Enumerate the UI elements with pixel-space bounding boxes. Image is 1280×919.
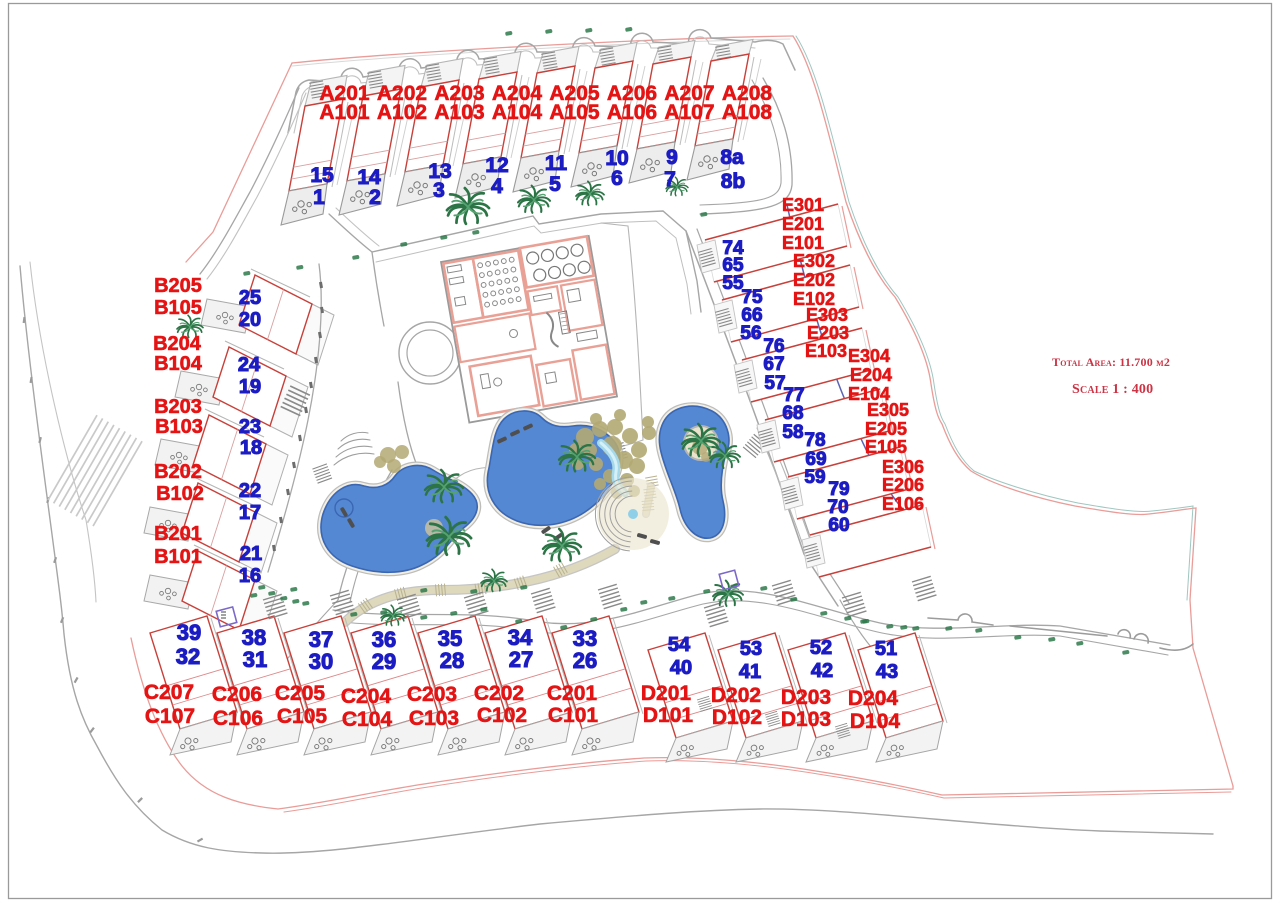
svg-text:C203: C203	[407, 683, 457, 706]
svg-text:E105: E105	[865, 437, 907, 457]
svg-text:22: 22	[239, 480, 261, 502]
svg-text:59: 59	[804, 467, 825, 488]
svg-text:B104: B104	[154, 353, 203, 375]
svg-text:C206: C206	[212, 683, 262, 706]
svg-text:30: 30	[309, 649, 333, 674]
svg-text:B105: B105	[154, 297, 202, 319]
svg-text:A105: A105	[549, 101, 600, 124]
svg-text:D102: D102	[712, 706, 762, 729]
svg-text:Total Area: 11.700 м2: Total Area: 11.700 м2	[1052, 355, 1170, 369]
svg-text:3: 3	[433, 179, 445, 202]
svg-text:Scale 1 : 400: Scale 1 : 400	[1072, 382, 1153, 397]
svg-text:A108: A108	[722, 101, 773, 124]
svg-text:D201: D201	[641, 682, 692, 705]
svg-text:9: 9	[666, 146, 678, 169]
svg-text:B201: B201	[154, 523, 202, 545]
svg-text:B102: B102	[156, 483, 204, 505]
svg-text:25: 25	[239, 287, 261, 309]
svg-text:B204: B204	[153, 333, 202, 355]
svg-text:C202: C202	[474, 682, 524, 705]
svg-text:67: 67	[763, 354, 784, 375]
svg-text:19: 19	[239, 376, 261, 398]
svg-text:60: 60	[828, 515, 849, 536]
svg-text:D202: D202	[711, 684, 761, 707]
svg-text:C101: C101	[548, 704, 599, 727]
svg-text:E306: E306	[882, 457, 924, 477]
svg-text:28: 28	[440, 648, 464, 673]
svg-text:42: 42	[811, 660, 833, 682]
svg-text:E305: E305	[867, 400, 909, 420]
svg-text:21: 21	[240, 543, 262, 565]
svg-text:56: 56	[740, 323, 761, 344]
svg-text:27: 27	[509, 647, 533, 672]
svg-text:7: 7	[664, 168, 676, 191]
svg-text:C201: C201	[547, 682, 598, 705]
svg-text:43: 43	[876, 661, 898, 683]
svg-text:C106: C106	[213, 707, 263, 730]
svg-text:52: 52	[810, 637, 832, 659]
svg-text:E301: E301	[782, 195, 824, 215]
svg-text:E103: E103	[805, 341, 847, 361]
svg-text:E205: E205	[865, 419, 907, 439]
svg-text:E106: E106	[882, 494, 924, 514]
svg-text:29: 29	[372, 649, 396, 674]
svg-text:8b: 8b	[721, 170, 746, 193]
svg-text:D104: D104	[850, 710, 901, 733]
svg-text:D203: D203	[781, 686, 831, 709]
svg-text:B202: B202	[154, 461, 202, 483]
svg-text:8a: 8a	[720, 146, 744, 169]
svg-text:6: 6	[611, 167, 623, 190]
svg-text:54: 54	[668, 634, 691, 656]
svg-text:E201: E201	[782, 214, 824, 234]
svg-text:57: 57	[764, 373, 785, 394]
svg-text:58: 58	[782, 422, 803, 443]
svg-text:1: 1	[313, 186, 325, 209]
svg-text:B203: B203	[154, 396, 202, 418]
svg-text:B205: B205	[154, 275, 202, 297]
svg-text:C102: C102	[477, 704, 527, 727]
svg-text:23: 23	[239, 416, 261, 438]
svg-text:C107: C107	[145, 705, 195, 728]
svg-text:17: 17	[239, 502, 261, 524]
svg-text:C207: C207	[144, 681, 194, 704]
svg-text:C205: C205	[275, 682, 326, 705]
svg-text:B103: B103	[155, 416, 203, 438]
svg-text:E303: E303	[806, 305, 848, 325]
svg-text:12: 12	[485, 154, 508, 177]
svg-text:E302: E302	[793, 251, 835, 271]
svg-text:A106: A106	[607, 101, 657, 124]
svg-text:41: 41	[739, 661, 761, 683]
svg-text:E206: E206	[882, 475, 924, 495]
svg-text:C103: C103	[409, 707, 459, 730]
svg-text:E204: E204	[850, 365, 892, 385]
svg-text:39: 39	[177, 620, 201, 645]
svg-text:C104: C104	[342, 708, 393, 731]
svg-text:C105: C105	[277, 705, 328, 728]
svg-text:31: 31	[243, 647, 267, 672]
svg-text:E101: E101	[782, 233, 824, 253]
svg-text:4: 4	[491, 175, 503, 198]
svg-text:15: 15	[310, 164, 334, 187]
svg-text:78: 78	[804, 430, 825, 451]
svg-text:11: 11	[545, 152, 568, 175]
svg-text:26: 26	[573, 648, 597, 673]
svg-text:A107: A107	[664, 101, 714, 124]
svg-text:A103: A103	[434, 101, 484, 124]
svg-text:A104: A104	[492, 101, 543, 124]
svg-text:2: 2	[369, 186, 381, 209]
svg-text:24: 24	[238, 354, 261, 376]
svg-text:D101: D101	[643, 704, 694, 727]
svg-text:A102: A102	[377, 101, 427, 124]
svg-text:D103: D103	[781, 708, 831, 731]
svg-text:D204: D204	[848, 687, 899, 710]
svg-text:20: 20	[239, 309, 261, 331]
svg-text:68: 68	[782, 403, 803, 424]
svg-text:40: 40	[670, 657, 692, 679]
svg-text:53: 53	[740, 638, 762, 660]
svg-text:5: 5	[549, 173, 561, 196]
svg-text:51: 51	[875, 638, 897, 660]
svg-text:16: 16	[239, 565, 261, 587]
svg-text:C204: C204	[341, 685, 392, 708]
svg-text:E203: E203	[807, 323, 849, 343]
svg-text:A101: A101	[319, 101, 370, 124]
svg-text:E202: E202	[793, 270, 835, 290]
svg-text:18: 18	[240, 437, 262, 459]
svg-text:E304: E304	[848, 346, 890, 366]
svg-text:32: 32	[176, 644, 200, 669]
svg-text:B101: B101	[154, 546, 202, 568]
